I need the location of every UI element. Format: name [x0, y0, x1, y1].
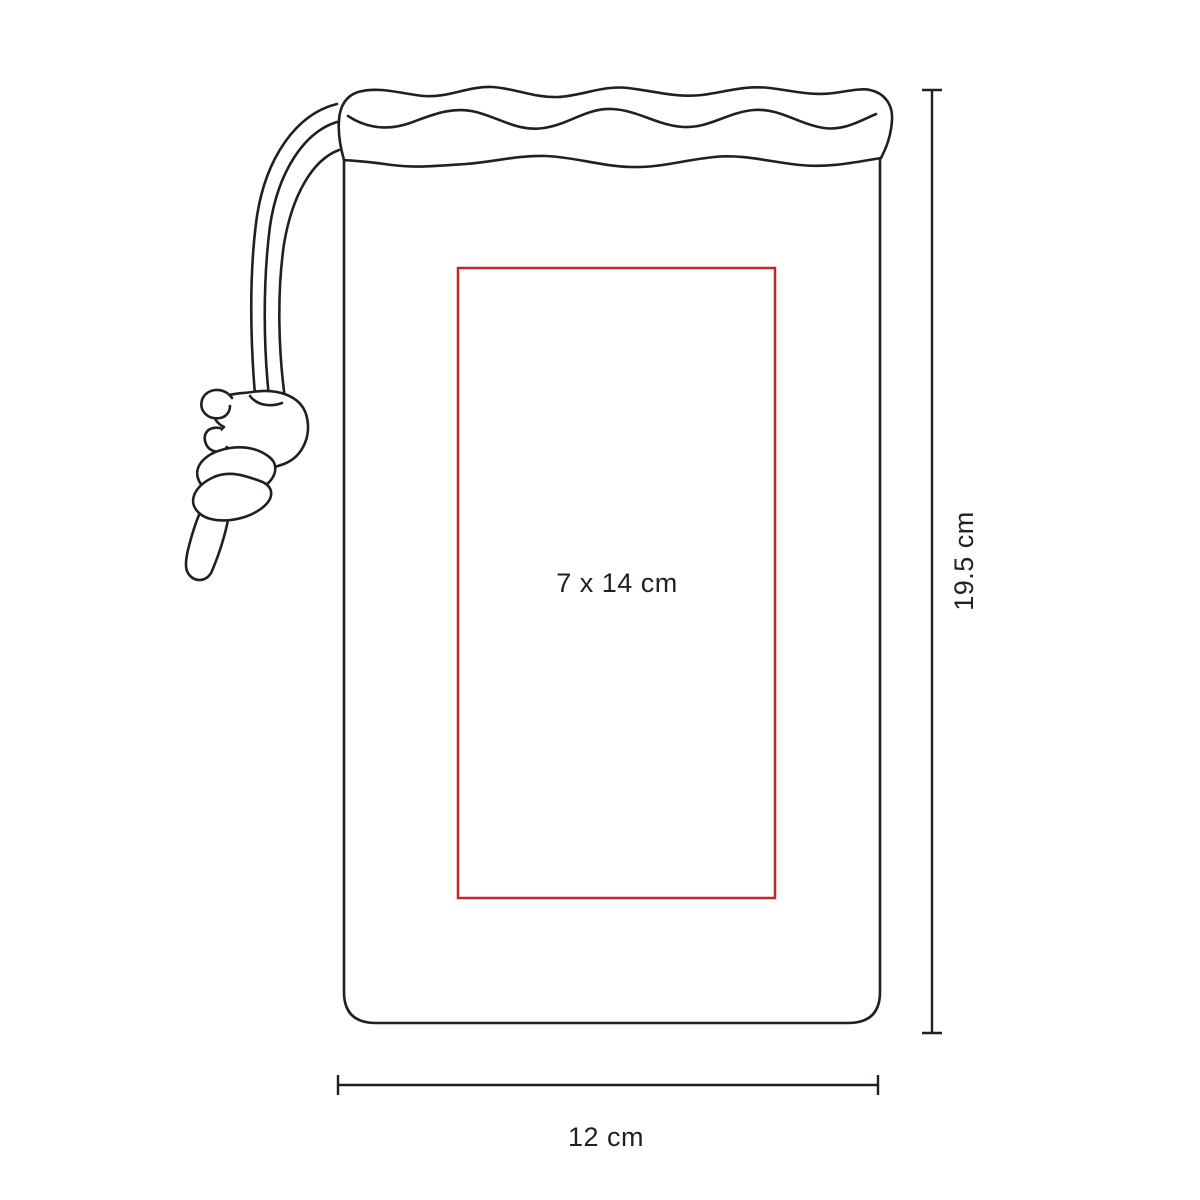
- print-area: 7 x 14 cm: [458, 268, 775, 898]
- width-dimension: 12 cm: [338, 1075, 878, 1152]
- drawstring-cords: [251, 104, 339, 406]
- pouch-drawing: [186, 87, 892, 1023]
- cord-lock-button: [201, 390, 232, 418]
- pouch-dimension-diagram: 7 x 14 cm 19.5 cm 12 cm: [0, 0, 1200, 1200]
- drawstring-cord-line: [265, 122, 337, 406]
- height-dimension: 19.5 cm: [922, 90, 979, 1033]
- width-dimension-label: 12 cm: [568, 1122, 644, 1152]
- print-area-label: 7 x 14 cm: [556, 568, 678, 598]
- drawstring-cord-line: [279, 150, 339, 406]
- height-dimension-label: 19.5 cm: [949, 511, 979, 611]
- drawstring-cord-line: [251, 104, 337, 406]
- cord-knot-twist-lower: [193, 474, 271, 521]
- pouch-collar: [339, 87, 892, 167]
